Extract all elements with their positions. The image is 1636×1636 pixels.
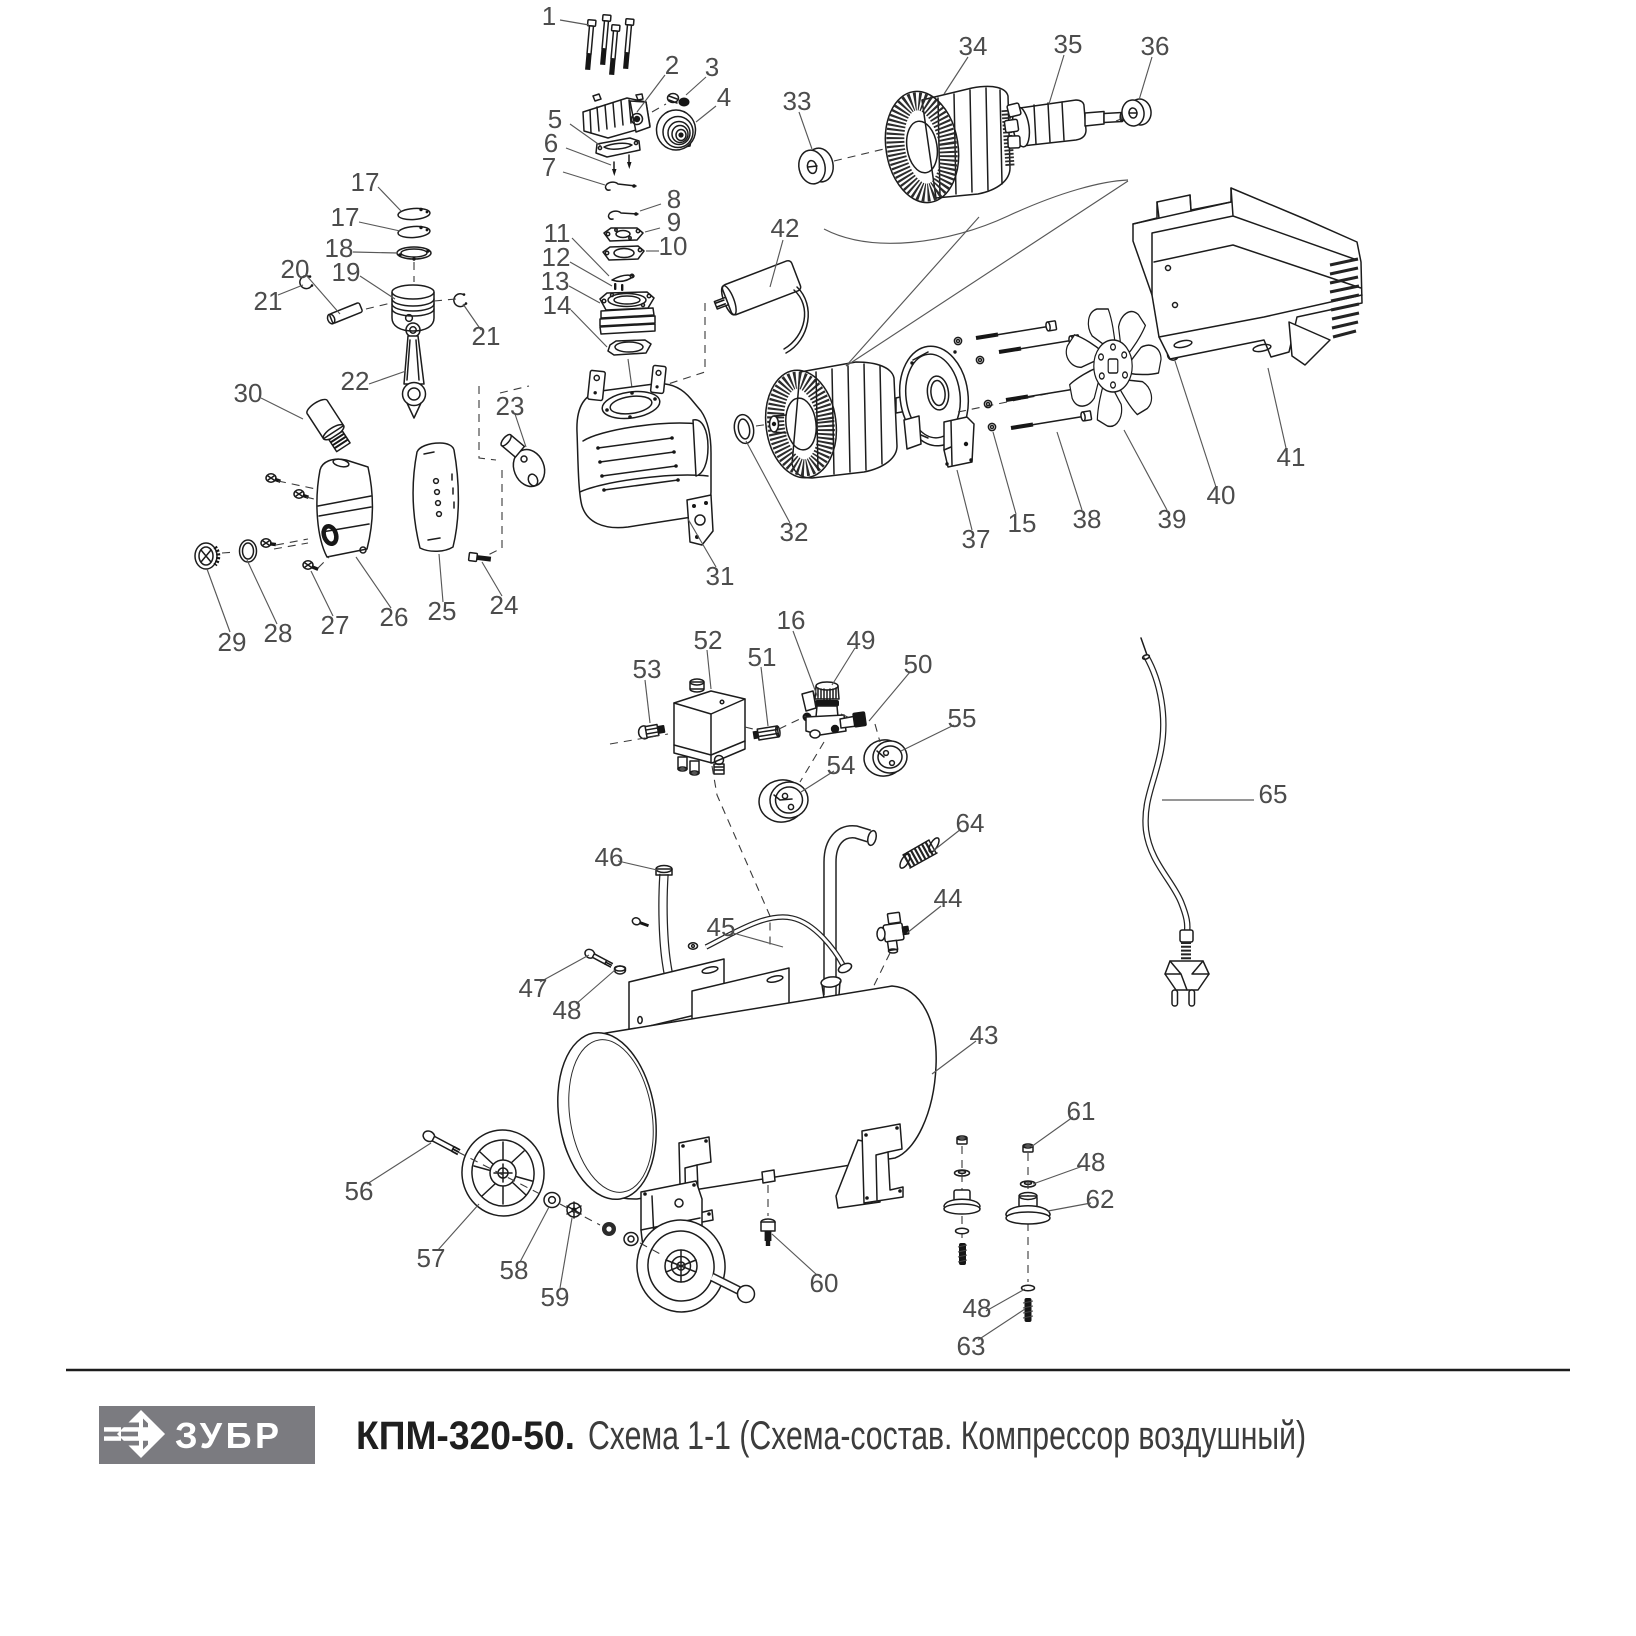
svg-text:2: 2 (665, 50, 679, 80)
svg-text:1: 1 (542, 1, 556, 31)
svg-text:48: 48 (553, 995, 582, 1025)
svg-text:16: 16 (777, 605, 806, 635)
svg-text:34: 34 (959, 31, 988, 61)
svg-text:58: 58 (500, 1255, 529, 1285)
svg-text:3: 3 (705, 52, 719, 82)
svg-text:37: 37 (962, 524, 991, 554)
svg-text:31: 31 (706, 561, 735, 591)
svg-text:27: 27 (321, 610, 350, 640)
svg-text:41: 41 (1277, 442, 1306, 472)
svg-text:21: 21 (472, 321, 501, 351)
svg-text:20: 20 (281, 254, 310, 284)
svg-text:47: 47 (519, 973, 548, 1003)
svg-text:44: 44 (934, 883, 963, 913)
svg-text:28: 28 (264, 618, 293, 648)
svg-text:50: 50 (904, 649, 933, 679)
svg-text:64: 64 (956, 808, 985, 838)
svg-text:39: 39 (1158, 504, 1187, 534)
svg-text:49: 49 (847, 625, 876, 655)
svg-text:21: 21 (254, 286, 283, 316)
svg-text:7: 7 (542, 152, 556, 182)
svg-text:48: 48 (1077, 1147, 1106, 1177)
svg-text:30: 30 (234, 378, 263, 408)
svg-text:КПМ-320-50.: КПМ-320-50. (356, 1414, 575, 1458)
svg-text:54: 54 (827, 750, 856, 780)
svg-text:63: 63 (957, 1331, 986, 1361)
svg-text:52: 52 (694, 625, 723, 655)
svg-text:46: 46 (595, 842, 624, 872)
svg-text:22: 22 (341, 366, 370, 396)
svg-text:23: 23 (496, 391, 525, 421)
svg-text:60: 60 (810, 1268, 839, 1298)
svg-text:35: 35 (1054, 29, 1083, 59)
svg-text:45: 45 (707, 912, 736, 942)
svg-text:17: 17 (331, 202, 360, 232)
svg-text:15: 15 (1008, 508, 1037, 538)
svg-text:56: 56 (345, 1176, 374, 1206)
svg-text:Схема 1-1 (Схема-состав. Компр: Схема 1-1 (Схема-состав. Компрессор возд… (588, 1414, 1306, 1458)
svg-text:17: 17 (351, 167, 380, 197)
svg-text:29: 29 (218, 627, 247, 657)
svg-text:ЗУБР: ЗУБР (175, 1415, 282, 1456)
svg-text:40: 40 (1207, 480, 1236, 510)
svg-text:4: 4 (717, 82, 731, 112)
svg-text:43: 43 (970, 1020, 999, 1050)
svg-text:24: 24 (490, 590, 519, 620)
svg-text:51: 51 (748, 642, 777, 672)
svg-text:48: 48 (963, 1293, 992, 1323)
svg-text:53: 53 (633, 654, 662, 684)
svg-text:25: 25 (428, 596, 457, 626)
svg-text:19: 19 (332, 257, 361, 287)
svg-text:32: 32 (780, 517, 809, 547)
svg-text:59: 59 (541, 1282, 570, 1312)
svg-text:38: 38 (1073, 504, 1102, 534)
svg-text:36: 36 (1141, 31, 1170, 61)
svg-text:57: 57 (417, 1243, 446, 1273)
svg-text:61: 61 (1067, 1096, 1096, 1126)
svg-text:55: 55 (948, 703, 977, 733)
svg-text:65: 65 (1259, 779, 1288, 809)
svg-text:14: 14 (543, 290, 572, 320)
svg-text:10: 10 (659, 231, 688, 261)
svg-text:42: 42 (771, 213, 800, 243)
svg-text:26: 26 (380, 602, 409, 632)
svg-text:33: 33 (783, 86, 812, 116)
svg-text:62: 62 (1086, 1184, 1115, 1214)
